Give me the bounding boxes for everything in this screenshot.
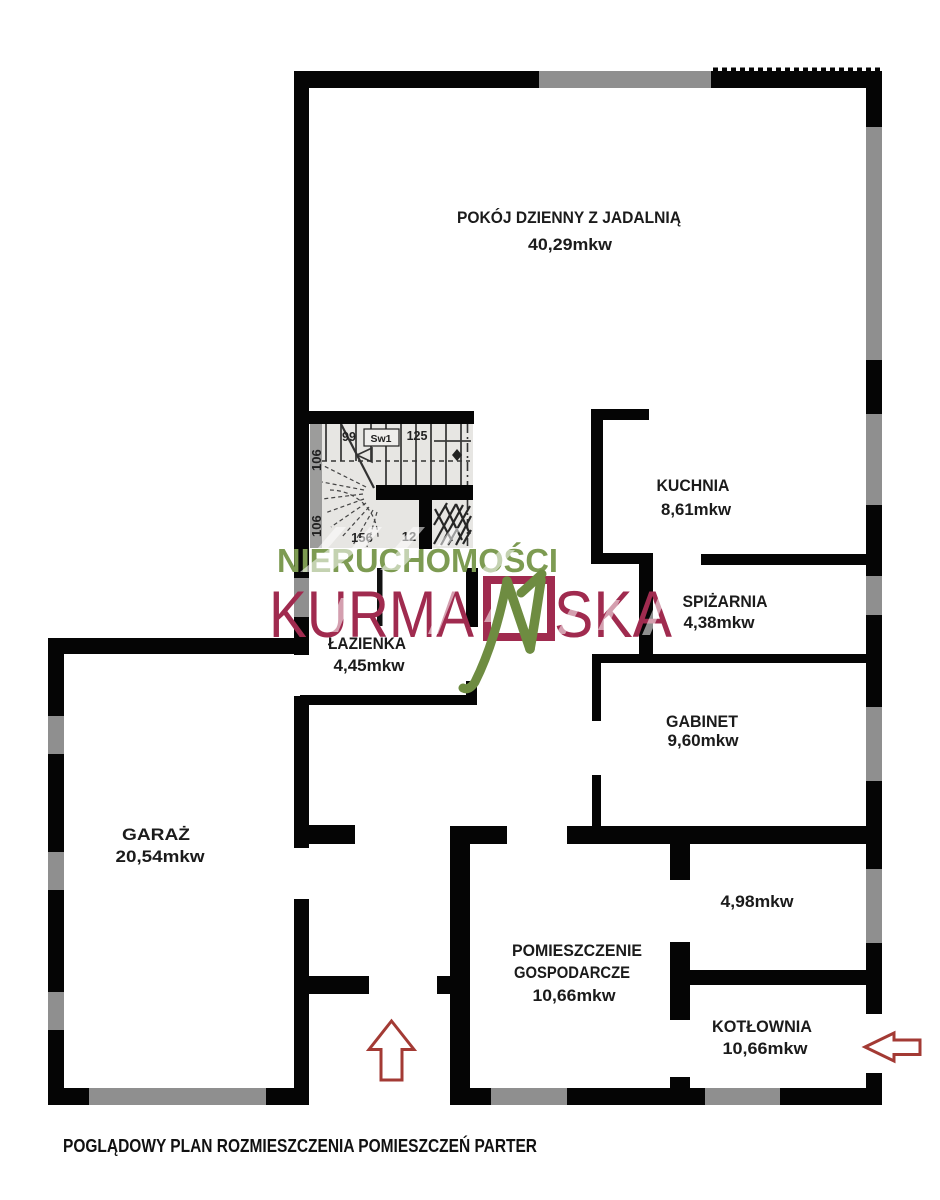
svg-text:10,66mkw: 10,66mkw bbox=[723, 1040, 808, 1058]
svg-text:4,98mkw: 4,98mkw bbox=[721, 893, 794, 911]
svg-text:8,61mkw: 8,61mkw bbox=[661, 501, 731, 519]
svg-text:106: 106 bbox=[309, 515, 324, 537]
svg-text:99: 99 bbox=[342, 430, 356, 444]
svg-text:106: 106 bbox=[309, 449, 324, 471]
svg-text:9,60mkw: 9,60mkw bbox=[668, 732, 739, 750]
svg-text:40,29mkw: 40,29mkw bbox=[528, 236, 612, 254]
svg-text:POGLĄDOWY PLAN ROZMIESZCZENIA: POGLĄDOWY PLAN ROZMIESZCZENIA POMIESZCZE… bbox=[63, 1135, 537, 1156]
svg-text:GARAŻ: GARAŻ bbox=[122, 826, 190, 844]
svg-text:ŁAZIENKA: ŁAZIENKA bbox=[328, 635, 406, 653]
svg-text:Sw1: Sw1 bbox=[370, 433, 391, 445]
svg-text:20,54mkw: 20,54mkw bbox=[116, 848, 205, 866]
svg-text:125: 125 bbox=[407, 429, 428, 443]
svg-text:10,66mkw: 10,66mkw bbox=[533, 987, 616, 1005]
svg-text:SPIŻARNIA: SPIŻARNIA bbox=[683, 593, 768, 611]
svg-text:4,45mkw: 4,45mkw bbox=[334, 657, 405, 675]
svg-text:GABINET: GABINET bbox=[666, 713, 738, 731]
svg-text:KOTŁOWNIA: KOTŁOWNIA bbox=[712, 1018, 812, 1036]
svg-text:GOSPODARCZE: GOSPODARCZE bbox=[514, 964, 630, 982]
svg-text:4,38mkw: 4,38mkw bbox=[684, 614, 755, 632]
svg-text:POMIESZCZENIE: POMIESZCZENIE bbox=[512, 942, 642, 960]
svg-text:POKÓJ DZIENNY Z JADALNIĄ: POKÓJ DZIENNY Z JADALNIĄ bbox=[457, 208, 681, 227]
svg-text:KUCHNIA: KUCHNIA bbox=[657, 477, 730, 495]
